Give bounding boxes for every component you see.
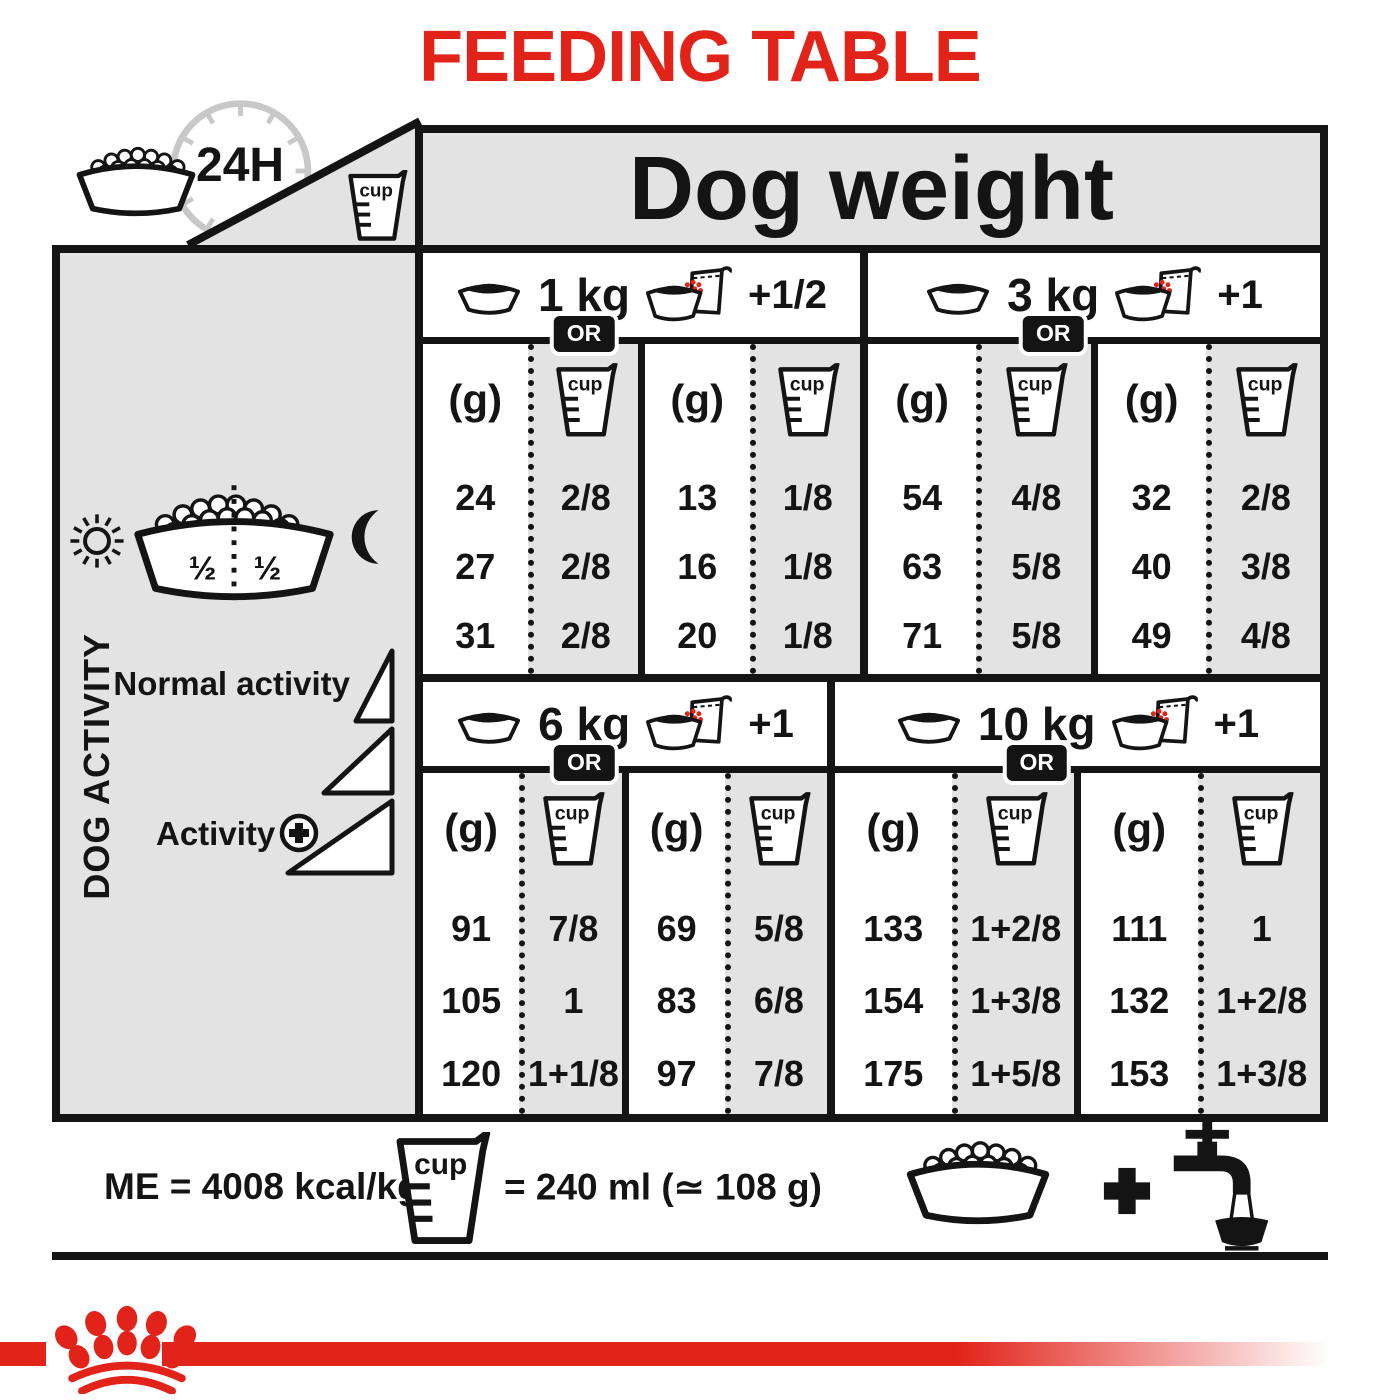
cup-column: 4/8 5/8 5/8	[976, 344, 1090, 674]
table-cell: 40	[1132, 546, 1172, 588]
table-cell: 69	[657, 908, 697, 950]
table-cell: 5/8	[754, 908, 804, 950]
bowl-with-pouch-icon	[1112, 694, 1198, 755]
dog-weight-label: Dog weight	[629, 138, 1114, 241]
or-badge: OR	[1002, 741, 1071, 785]
grams-header: (g)	[645, 344, 750, 450]
table-cell: 2/8	[1241, 477, 1291, 519]
grams-column: (g) 24 27 31	[423, 344, 528, 674]
grams-header: (g)	[868, 344, 976, 450]
half-left-label: ½	[189, 551, 217, 588]
crown-paw-logo	[54, 1300, 202, 1394]
cup-column-mixed: 2/8 3/8 4/8	[1206, 344, 1320, 674]
measuring-cup-icon	[392, 1132, 492, 1246]
moon-icon	[346, 508, 388, 566]
cup-column-mixed: 1 1+2/8 1+3/8	[1198, 773, 1321, 1114]
plus-portion-label: +1/2	[748, 273, 827, 318]
column-divider	[1074, 773, 1081, 1114]
table-cell: 2/8	[561, 546, 611, 588]
table-cell: 1+1/8	[528, 1053, 619, 1095]
table-cell: 105	[441, 980, 501, 1022]
table-cell: 133	[863, 908, 923, 950]
half-split-bowl-icon: ½ ½	[126, 483, 342, 623]
cup-column: 7/8 1 1+1/8	[519, 773, 621, 1114]
measuring-cup-icon	[554, 363, 618, 438]
cup-column-mixed: 1/8 1/8 1/8	[750, 344, 861, 674]
table-cell: 1/8	[783, 615, 833, 657]
table-cell: 154	[863, 980, 923, 1022]
table-cell: 83	[657, 980, 697, 1022]
bowl-with-pouch-icon	[646, 694, 732, 755]
table-cell: 132	[1109, 980, 1169, 1022]
table-cell: 24	[455, 477, 495, 519]
grams-header: (g)	[423, 773, 519, 879]
table-cell: 5/8	[1011, 615, 1061, 657]
measuring-cup-icon	[1230, 792, 1294, 867]
grams-column-mixed: (g) 32 40 49	[1098, 344, 1206, 674]
grams-header: (g)	[423, 344, 528, 450]
cup-column-mixed: 5/8 6/8 7/8	[725, 773, 827, 1114]
quadrant-10kg: 10 kg OR +1 (g) 133 154 175 1+2/8 1+3/8	[827, 674, 1328, 1122]
quadrant-3kg-header: 3 kg OR +1	[868, 253, 1320, 344]
measuring-cup-icon	[747, 792, 811, 867]
grams-header: (g)	[629, 773, 725, 879]
plus-circle-icon	[276, 810, 322, 856]
feeding-table-page: cup	[0, 0, 1400, 1400]
table-cell: 1+5/8	[970, 1053, 1061, 1095]
measuring-cup-icon	[1234, 363, 1298, 438]
table-cell: 4/8	[1241, 615, 1291, 657]
table-cell: 7/8	[754, 1053, 804, 1095]
24h-label: 24H	[196, 138, 284, 193]
activity-triangle-medium	[321, 726, 395, 796]
quadrant-6kg-header: 6 kg OR +1	[423, 682, 827, 773]
or-badge: OR	[550, 741, 619, 785]
quadrant-10kg-header: 10 kg OR +1	[835, 682, 1320, 773]
grams-column-mixed: (g) 13 16 20	[645, 344, 750, 674]
table-cell: 120	[441, 1053, 501, 1095]
bowl-with-pouch-icon	[646, 265, 732, 326]
table-cell: 2/8	[561, 477, 611, 519]
table-cell: 1+2/8	[1216, 980, 1307, 1022]
activity-plus-label: Activity	[156, 815, 275, 853]
table-cell: 2/8	[561, 615, 611, 657]
table-cell: 97	[657, 1053, 697, 1095]
cup-column: 1+2/8 1+3/8 1+5/8	[952, 773, 1075, 1114]
quadrant-1kg-header: 1 kg OR +1/2	[423, 253, 860, 344]
grams-column-mixed: (g) 69 83 97	[629, 773, 725, 1114]
grams-column: (g) 133 154 175	[835, 773, 952, 1114]
half-right-label: ½	[253, 551, 281, 588]
table-cell: 32	[1132, 477, 1172, 519]
table-cell: 175	[863, 1053, 923, 1095]
plus-icon	[1102, 1166, 1152, 1216]
table-cell: 1+2/8	[970, 908, 1061, 950]
grams-header: (g)	[1098, 344, 1206, 450]
activity-triangle-small	[353, 648, 395, 724]
plus-portion-label: +1	[748, 702, 794, 747]
table-cell: 6/8	[754, 980, 804, 1022]
column-divider	[638, 344, 645, 674]
table-cell: 1/8	[783, 477, 833, 519]
measuring-cup-icon	[984, 792, 1048, 867]
me-kcal-label: ME = 4008 kcal/kg	[104, 1166, 420, 1208]
quadrant-3kg: 3 kg OR +1 (g) 54 63 71 4/8 5/8 5/8	[860, 245, 1328, 682]
quadrant-6kg: 6 kg OR +1 (g) 91 105 120 7/8 1 1+1/8	[415, 674, 835, 1122]
dry-bowl-icon	[456, 275, 522, 316]
table-cell: 63	[902, 546, 942, 588]
grams-header: (g)	[1081, 773, 1198, 879]
column-divider	[1091, 344, 1098, 674]
measuring-cup-icon	[346, 170, 408, 242]
table-cell: 71	[902, 615, 942, 657]
or-badge: OR	[1019, 312, 1088, 356]
dry-bowl-icon	[896, 704, 962, 745]
table-cell: 13	[677, 477, 717, 519]
grams-column: (g) 91 105 120	[423, 773, 519, 1114]
table-cell: 153	[1109, 1053, 1169, 1095]
table-cell: 54	[902, 477, 942, 519]
cup-equivalence-label: = 240 ml (≃ 108 g)	[504, 1166, 822, 1209]
table-cell: 1+3/8	[970, 980, 1061, 1022]
table-cell: 16	[677, 546, 717, 588]
table-cell: 49	[1132, 615, 1172, 657]
metabolic-energy-bar: ME = 4008 kcal/kg = 240 ml (≃ 108 g)	[52, 1114, 1328, 1260]
kibble-bowl-icon	[864, 1136, 1092, 1240]
plus-portion-label: +1	[1214, 702, 1260, 747]
table-cell: 3/8	[1241, 546, 1291, 588]
dry-bowl-icon	[456, 704, 522, 745]
dog-weight-header: Dog weight	[415, 125, 1328, 253]
dog-activity-sidebar: ½ ½ DOG ACTIVITY Normal activity Activit…	[52, 245, 423, 1122]
sun-icon	[66, 508, 128, 574]
table-cell: 91	[451, 908, 491, 950]
table-cell: 31	[455, 615, 495, 657]
table-cell: 1+3/8	[1216, 1053, 1307, 1095]
cup-column: 2/8 2/8 2/8	[528, 344, 639, 674]
table-cell: 1	[1252, 908, 1272, 950]
table-cell: 7/8	[548, 908, 598, 950]
bowl-with-pouch-icon	[1115, 265, 1201, 326]
normal-activity-label: Normal activity	[60, 665, 350, 703]
grams-column: (g) 54 63 71	[868, 344, 976, 674]
water-tap-bowl-icon	[1154, 1122, 1292, 1254]
measuring-cup-icon	[776, 363, 840, 438]
red-bar-right	[162, 1342, 1330, 1366]
page-title: FEEDING TABLE	[0, 16, 1400, 98]
table-cell: 5/8	[1011, 546, 1061, 588]
measuring-cup-icon	[1004, 363, 1068, 438]
measuring-cup-icon	[541, 792, 605, 867]
kibble-bowl-icon	[70, 142, 202, 230]
table-cell: 1	[563, 980, 583, 1022]
grams-column-mixed: (g) 111 132 153	[1081, 773, 1198, 1114]
dry-bowl-icon	[925, 275, 991, 316]
table-cell: 111	[1111, 908, 1167, 950]
plus-portion-label: +1	[1217, 273, 1263, 318]
table-cell: 1/8	[783, 546, 833, 588]
red-bar-left	[0, 1342, 46, 1366]
quadrant-1kg: 1 kg OR +1/2 (g) 24 27 31 2/8 2/8 2/8	[415, 245, 868, 682]
grams-header: (g)	[835, 773, 952, 879]
or-badge: OR	[550, 312, 619, 356]
table-cell: 4/8	[1011, 477, 1061, 519]
column-divider	[622, 773, 629, 1114]
table-cell: 20	[677, 615, 717, 657]
table-cell: 27	[455, 546, 495, 588]
